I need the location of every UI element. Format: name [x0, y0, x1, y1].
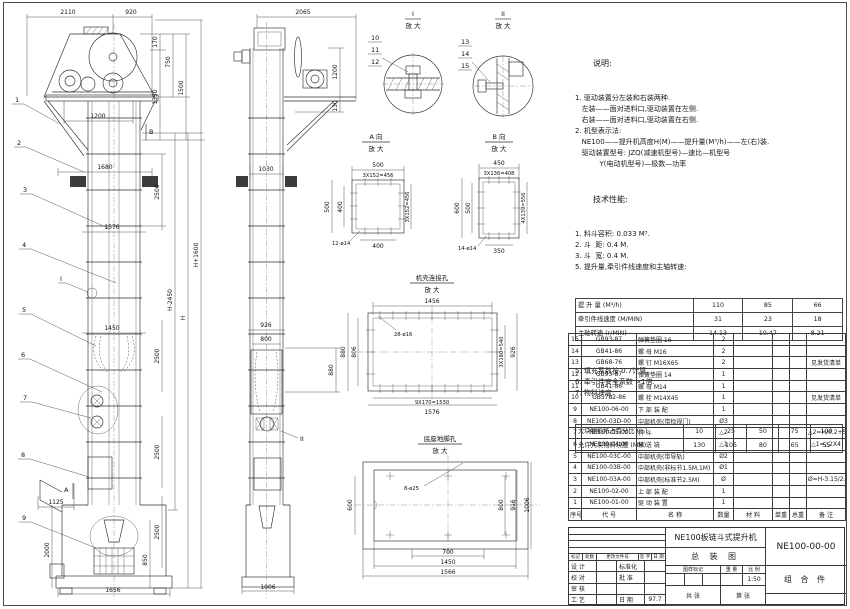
dim-label: 1200 [332, 64, 339, 79]
table-cell: 螺 栓 M14X45 [637, 392, 714, 404]
dim-label: 1656 [105, 587, 120, 594]
table-cell [734, 439, 773, 451]
table-cell [734, 462, 773, 474]
role-label: 校 对 [569, 572, 597, 583]
table-cell: 弹簧垫圈 14 [637, 369, 714, 381]
dim-label: 800 [260, 336, 272, 343]
balloon-number: 7 [23, 394, 27, 402]
table-cell [773, 497, 790, 509]
detail-ii-view: II 放 大 13 14 15 [458, 10, 533, 118]
table-cell [807, 415, 846, 427]
table-cell [807, 404, 846, 416]
dim-label: 1030 [258, 166, 273, 173]
table-cell [807, 485, 846, 497]
bom-header-cell: 序号 [569, 509, 582, 521]
table-cell: 下 部 装 配 [637, 404, 714, 416]
balloon-number: 13 [461, 38, 469, 46]
dim-label: 8-ø25 [404, 486, 419, 492]
rev-label: 更改文件号 [597, 554, 639, 561]
dim-label: 2500 [154, 524, 161, 539]
table-cell: 2 [714, 357, 734, 369]
table-cell: GB93-87 [582, 334, 637, 346]
dim-label: 806 [351, 346, 358, 358]
table-cell: NE100-03A-00 [582, 474, 637, 486]
dim-label: 1566 [440, 569, 455, 576]
title-block: 标记 处数 更改文件号 签 字 日 期 设 计 标准化 校 对 批 准 审 核 … [568, 527, 845, 605]
dim-label: 350 [493, 248, 505, 255]
section-marker: B [149, 128, 153, 136]
section-marker: A [64, 486, 69, 494]
table-cell: 3 [569, 474, 582, 486]
table-cell: 12 [569, 369, 582, 381]
balloon-number: 3 [23, 186, 27, 194]
note-line: 左装——面对进料口,驱动装置在左侧. [575, 104, 843, 115]
table-cell [734, 415, 773, 427]
table-cell [773, 485, 790, 497]
note-line: Y(电动机型号)—极数—功率 [575, 159, 843, 170]
bom-header-cell: 材 料 [734, 509, 773, 521]
dim-label: H [180, 316, 187, 321]
table-cell [773, 404, 790, 416]
dim-label: H-2450 [167, 289, 174, 311]
balloon-number: 12 [371, 58, 379, 66]
table-cell: 驱 动 装 置 [637, 497, 714, 509]
table-cell [734, 427, 773, 439]
mark-label: 图样标记 [666, 566, 721, 574]
shell-holes-view: 机壳连接孔 放 大 1456 28-ø16 880 806 3X180=540 … [340, 273, 517, 416]
detail-marker: II [300, 435, 304, 443]
table-cell: Ø2 [714, 450, 734, 462]
dim-label: 1576 [424, 409, 439, 416]
table-row: 9NE100-06-00下 部 装 配1 [569, 404, 846, 416]
dim-label: 2000 [44, 542, 51, 557]
dim-label: 2500 [154, 184, 161, 199]
table-cell: 2 [569, 485, 582, 497]
note-line: 1. 料斗容积: 0.033 M³. [575, 229, 843, 240]
table-row: 提 升 量 (M³/h)1108566 [576, 299, 843, 313]
bom-header-cell: 单重 [773, 509, 790, 521]
table-cell: Ø3 [714, 415, 734, 427]
table-cell [773, 415, 790, 427]
table-cell: 2 [714, 345, 734, 357]
table-cell [734, 485, 773, 497]
table-cell: 1 [714, 497, 734, 509]
detail-title: I [412, 10, 414, 18]
table-cell [790, 415, 807, 427]
table-cell [790, 392, 807, 404]
table-row: 5NE100-03C-00中部机壳(带导轨)Ø2 [569, 450, 846, 462]
table-cell: GB68-76 [582, 357, 637, 369]
bom-header-cell: 数量 [714, 509, 734, 521]
table-cell: 7 [569, 427, 582, 439]
table-cell: 66 [793, 299, 843, 313]
dim-label: 1680 [97, 164, 112, 171]
table-cell [773, 345, 790, 357]
dim-label: 28-ø16 [394, 332, 412, 338]
dim-label: 1200 [90, 113, 105, 120]
drawing-number: NE100-00-00 [766, 528, 846, 566]
base-holes-view: 底座地脚孔 放 大 600 8-ø25 800 916 1006 700 145… [347, 434, 540, 579]
table-row: 10GB5782-86螺 栓 M14X451见发货清单 [569, 392, 846, 404]
dim-label: 4X139=556 [521, 192, 527, 223]
table-cell [807, 345, 846, 357]
table-cell: NE100-04-00 [582, 439, 637, 451]
table-row: 7NE100-05-00料 斗△2△2=H/0.2+5.75 [569, 427, 846, 439]
dim-label: 2065 [295, 9, 310, 16]
product-title: NE100板链斗式提升机 [666, 528, 766, 548]
table-cell: 螺 钉 M16X65 [637, 357, 714, 369]
table-cell [734, 357, 773, 369]
table-cell [790, 497, 807, 509]
notes-heading: 说明: [593, 58, 843, 69]
table-cell: 31 [693, 313, 743, 327]
note-line: NE100——提升机高度H(M)——提升量(M³/h)——左(右)装. [575, 137, 843, 148]
table-cell [807, 497, 846, 509]
dim-label: 1450 [440, 559, 455, 566]
table-row: 15GB93-87弹簧垫圈 162 [569, 334, 846, 346]
table-cell: 23 [743, 313, 793, 327]
balloon-number: 8 [21, 451, 25, 459]
table-row: 8NE100-03D-00中部机壳(带检视门)Ø3 [569, 415, 846, 427]
table-cell: Ø1 [714, 462, 734, 474]
table-row: 2NE100-02-00上 部 装 配1 [569, 485, 846, 497]
table-cell: GB5782-86 [582, 392, 637, 404]
table-cell [773, 380, 790, 392]
table-row: 4NE100-03B-00中部机壳(非标节1.5M,1M)Ø1 [569, 462, 846, 474]
table-cell [773, 474, 790, 486]
table-cell [734, 474, 773, 486]
role-label: 标准化 [617, 561, 645, 572]
table-cell: 弹簧垫圈 16 [637, 334, 714, 346]
balloon-number: 14 [461, 50, 469, 58]
tech-lines-before: 1. 料斗容积: 0.033 M³.2. 斗 距: 0.4 M.3. 斗 宽: … [575, 229, 843, 273]
dim-label: 1456 [424, 298, 439, 305]
table-row: 13GB68-76螺 钉 M16X652见发货清单 [569, 357, 846, 369]
role-label: 设 计 [569, 561, 597, 572]
table-cell: 料 斗 [637, 427, 714, 439]
bom-header-cell: 总重 [790, 509, 807, 521]
table-cell: 螺 母 M14 [637, 380, 714, 392]
view-subtitle: 放 大 [491, 144, 507, 153]
table-cell: 6 [569, 439, 582, 451]
drawing-views: 2110 920 170 750 1350 1500 1200 B 1680 2… [0, 0, 565, 609]
scale-label: 比 例 [743, 566, 766, 574]
dim-label: 9X170=1530 [415, 400, 449, 406]
dim-label: 500 [465, 202, 472, 214]
dim-label: 3X136=408 [483, 171, 514, 177]
view-a: A 向 放 大 500 3X152=456 500 400 3X152=456 … [324, 132, 411, 250]
table-cell [790, 485, 807, 497]
dim-label: 12-ø14 [332, 241, 351, 247]
table-cell [773, 462, 790, 474]
view-subtitle: 放 大 [432, 446, 448, 455]
table-cell: NE100-03C-00 [582, 450, 637, 462]
dim-label: 700 [442, 549, 454, 556]
table-cell [790, 369, 807, 381]
view-b: B 向 放 大 450 3X136=408 600 500 4X139=556 … [454, 132, 527, 255]
table-cell: 提 升 量 (M³/h) [576, 299, 694, 313]
table-cell: 中部机壳(带导轨) [637, 450, 714, 462]
dim-label: 500 [324, 201, 331, 213]
dim-label: 3X152=456 [362, 173, 393, 179]
table-cell [734, 404, 773, 416]
table-cell [790, 357, 807, 369]
role-label: 日 期 [617, 595, 645, 606]
table-cell: Ø [714, 474, 734, 486]
table-cell: 8 [569, 415, 582, 427]
note-line: 3. 斗 宽: 0.4 M. [575, 251, 843, 262]
table-row: 14GB41-86螺 母 M162 [569, 345, 846, 357]
balloon-number: 1 [15, 96, 19, 104]
table-cell: 14 [569, 345, 582, 357]
table-cell [773, 392, 790, 404]
table-cell: 1 [714, 380, 734, 392]
dim-label: 450 [493, 160, 505, 167]
detail-subtitle: 放 大 [405, 21, 421, 30]
dim-label: 400 [337, 201, 344, 213]
table-cell [790, 345, 807, 357]
dim-label: 2500 [154, 348, 161, 363]
table-row: 12GB93-87弹簧垫圈 141 [569, 369, 846, 381]
table-cell: GB41-86 [582, 345, 637, 357]
dim-label: 1500 [178, 80, 185, 95]
dim-label: 750 [165, 56, 172, 68]
dim-label: 916 [510, 499, 517, 511]
table-cell: 输 送 链 [637, 439, 714, 451]
table-cell: 1 [569, 497, 582, 509]
detail-marker: I [60, 275, 62, 283]
balloon-number: 6 [21, 351, 25, 359]
weight-label: 重 量 [721, 566, 743, 574]
note-line: 2. 机型表示法: [575, 126, 843, 137]
table-cell [734, 392, 773, 404]
dim-label: 130 [332, 100, 339, 112]
dim-label: 3X152=456 [405, 191, 411, 222]
dim-label: 14-ø14 [458, 246, 477, 252]
dim-label: 400 [372, 243, 384, 250]
table-cell: △2=H/0.2+5.75 [807, 427, 846, 439]
balloon-number: 11 [371, 46, 379, 54]
table-cell [790, 462, 807, 474]
table-cell: 10 [569, 392, 582, 404]
table-cell [807, 450, 846, 462]
bom-header-cell: 备 注 [807, 509, 846, 521]
table-cell: NE100-06-00 [582, 404, 637, 416]
balloon-number: 15 [461, 62, 469, 70]
table-cell: 1 [714, 392, 734, 404]
rev-label: 日 期 [652, 554, 666, 561]
table-cell: 4 [569, 462, 582, 474]
table-cell [734, 369, 773, 381]
table-cell: NE100-02-00 [582, 485, 637, 497]
balloon-number: 10 [371, 34, 379, 42]
table-cell [773, 357, 790, 369]
table-cell [734, 334, 773, 346]
dim-label: 3X180=540 [499, 336, 505, 367]
table-cell [807, 369, 846, 381]
detail-subtitle: 放 大 [495, 21, 511, 30]
view-subtitle: 放 大 [368, 144, 384, 153]
table-cell [790, 474, 807, 486]
rev-label: 签 字 [639, 554, 652, 561]
table-cell [790, 334, 807, 346]
view-title: A 向 [369, 132, 382, 141]
table-cell [773, 369, 790, 381]
detail-i-view: I 放 大 10 11 12 [368, 10, 444, 116]
table-cell [773, 334, 790, 346]
table-cell [790, 404, 807, 416]
balloon-number: 2 [17, 139, 21, 147]
view-title: 机壳连接孔 [416, 273, 449, 282]
table-cell: 11 [569, 380, 582, 392]
table-cell: 中部机壳(带检视门) [637, 415, 714, 427]
bom-header-row: 序号 代 号 名 称 数量 材 料 单重 总重 备 注 [569, 509, 846, 521]
bom-header-cell: 名 称 [637, 509, 714, 521]
notes-lines: 1. 驱动装置分左装和右装两种. 左装——面对进料口,驱动装置在左侧. 右装——… [575, 93, 843, 170]
detail-title: II [501, 10, 505, 18]
table-cell: NE100-05-00 [582, 427, 637, 439]
dim-label: 920 [125, 9, 137, 16]
table-cell: 中部机壳(标准节2.5M) [637, 474, 714, 486]
dim-label: 500 [372, 162, 384, 169]
sheet-number: 第 张 [721, 586, 766, 605]
balloon-number: 5 [22, 306, 26, 314]
table-cell [807, 462, 846, 474]
table-cell: 5 [569, 450, 582, 462]
dim-label: 2500 [154, 444, 161, 459]
dim-label: 600 [347, 499, 354, 511]
dim-label: 926 [260, 322, 272, 329]
front-view [40, 24, 172, 598]
role-label: 审 核 [569, 584, 597, 595]
dim-label: 926 [510, 346, 517, 358]
note-line: 驱动装置型号: JZQ(减速机型号)—速比—机型号 [575, 148, 843, 159]
table-cell: 110 [693, 299, 743, 313]
table-cell: 见发货清单 [807, 392, 846, 404]
view-subtitle: 放 大 [424, 285, 440, 294]
table-cell: 1 [714, 485, 734, 497]
dim-label: 1350 [152, 89, 159, 104]
dim-label: H+1600 [193, 242, 200, 267]
table-cell [734, 497, 773, 509]
rev-label: 标记 [569, 554, 583, 561]
table-cell: 1 [714, 369, 734, 381]
rev-label: 处数 [583, 554, 597, 561]
table-cell [807, 380, 846, 392]
dim-label: 880 [328, 364, 335, 376]
table-cell: △1=△2X4 [807, 439, 846, 451]
sheets-total: 共 张 [666, 586, 721, 605]
table-row: 1NE100-01-00驱 动 装 置1 [569, 497, 846, 509]
table-cell [790, 450, 807, 462]
table-cell [734, 380, 773, 392]
table-row: 6NE100-04-00输 送 链△1△1=△2X4 [569, 439, 846, 451]
dim-label: 1125 [48, 499, 63, 506]
dim-label: 1006 [260, 584, 275, 591]
table-cell: 13 [569, 357, 582, 369]
table-cell [790, 439, 807, 451]
balloon-number: 9 [22, 514, 26, 522]
note-line: 1. 驱动装置分左装和右装两种. [575, 93, 843, 104]
dim-label: 600 [454, 202, 461, 214]
drawing-sheet: 2110 920 170 750 1350 1500 1200 B 1680 2… [0, 0, 850, 609]
table-cell: 见发货清单 [807, 357, 846, 369]
scale-value: 1:50 [743, 574, 766, 586]
table-row: 3NE100-03A-00中部机壳(标准节2.5M)ØØ=H-3.15/2.5 [569, 474, 846, 486]
table-cell: NE100-01-00 [582, 497, 637, 509]
table-cell [773, 450, 790, 462]
note-line: 2. 斗 距: 0.4 M. [575, 240, 843, 251]
tech-heading: 技术性能: [593, 194, 843, 205]
table-cell: 85 [743, 299, 793, 313]
table-cell: 螺 母 M16 [637, 345, 714, 357]
view-title: 底座地脚孔 [424, 434, 457, 443]
table-cell: 15 [569, 334, 582, 346]
table-cell [734, 450, 773, 462]
dim-label: 850 [142, 554, 149, 566]
bom-header-cell: 代 号 [582, 509, 637, 521]
table-cell [790, 380, 807, 392]
date-value: 97.7 [645, 595, 666, 606]
dim-label: 2110 [60, 9, 75, 16]
role-label: 批 准 [617, 572, 645, 583]
bom-section: 15GB93-87弹簧垫圈 16214GB41-86螺 母 M16213GB68… [568, 333, 845, 521]
dim-label: 1006 [524, 497, 531, 512]
sheet-name: 总 装 图 [666, 548, 766, 566]
table-cell [773, 427, 790, 439]
table-cell: Ø=H-3.15/2.5 [807, 474, 846, 486]
dim-label: 1450 [104, 325, 119, 332]
role-label: 工 艺 [569, 595, 597, 606]
table-cell: △2 [714, 427, 734, 439]
table-cell: 9 [569, 404, 582, 416]
table-cell [807, 334, 846, 346]
table-row: 11GB41-86螺 母 M141 [569, 380, 846, 392]
dim-label: 800 [498, 499, 505, 511]
table-cell: 牵引件线速度 (M/MIN) [576, 313, 694, 327]
note-line: 右装——面对进料口,驱动装置在右侧. [575, 115, 843, 126]
note-line: 5. 提升量,牵引件线速度和主轴转速: [575, 262, 843, 273]
table-cell: 18 [793, 313, 843, 327]
dim-label: 880 [340, 346, 347, 358]
view-title: B 向 [492, 132, 505, 141]
bom-table: 15GB93-87弹簧垫圈 16214GB41-86螺 母 M16213GB68… [568, 333, 846, 521]
dim-label: 170 [152, 36, 159, 48]
table-cell: 1 [714, 404, 734, 416]
balloon-number: 4 [22, 241, 26, 249]
table-cell: 2 [714, 334, 734, 346]
table-cell [773, 439, 790, 451]
table-cell: 上 部 装 配 [637, 485, 714, 497]
part-kind: 组 合 件 [766, 566, 846, 594]
table-cell: 中部机壳(非标节1.5M,1M) [637, 462, 714, 474]
table-cell: NE100-03B-00 [582, 462, 637, 474]
table-cell [734, 345, 773, 357]
table-cell: GB41-86 [582, 380, 637, 392]
table-cell: NE100-03D-00 [582, 415, 637, 427]
table-cell [790, 427, 807, 439]
table-row: 牵引件线速度 (M/MIN)312318 [576, 313, 843, 327]
table-cell: △1 [714, 439, 734, 451]
table-cell: GB93-87 [582, 369, 637, 381]
